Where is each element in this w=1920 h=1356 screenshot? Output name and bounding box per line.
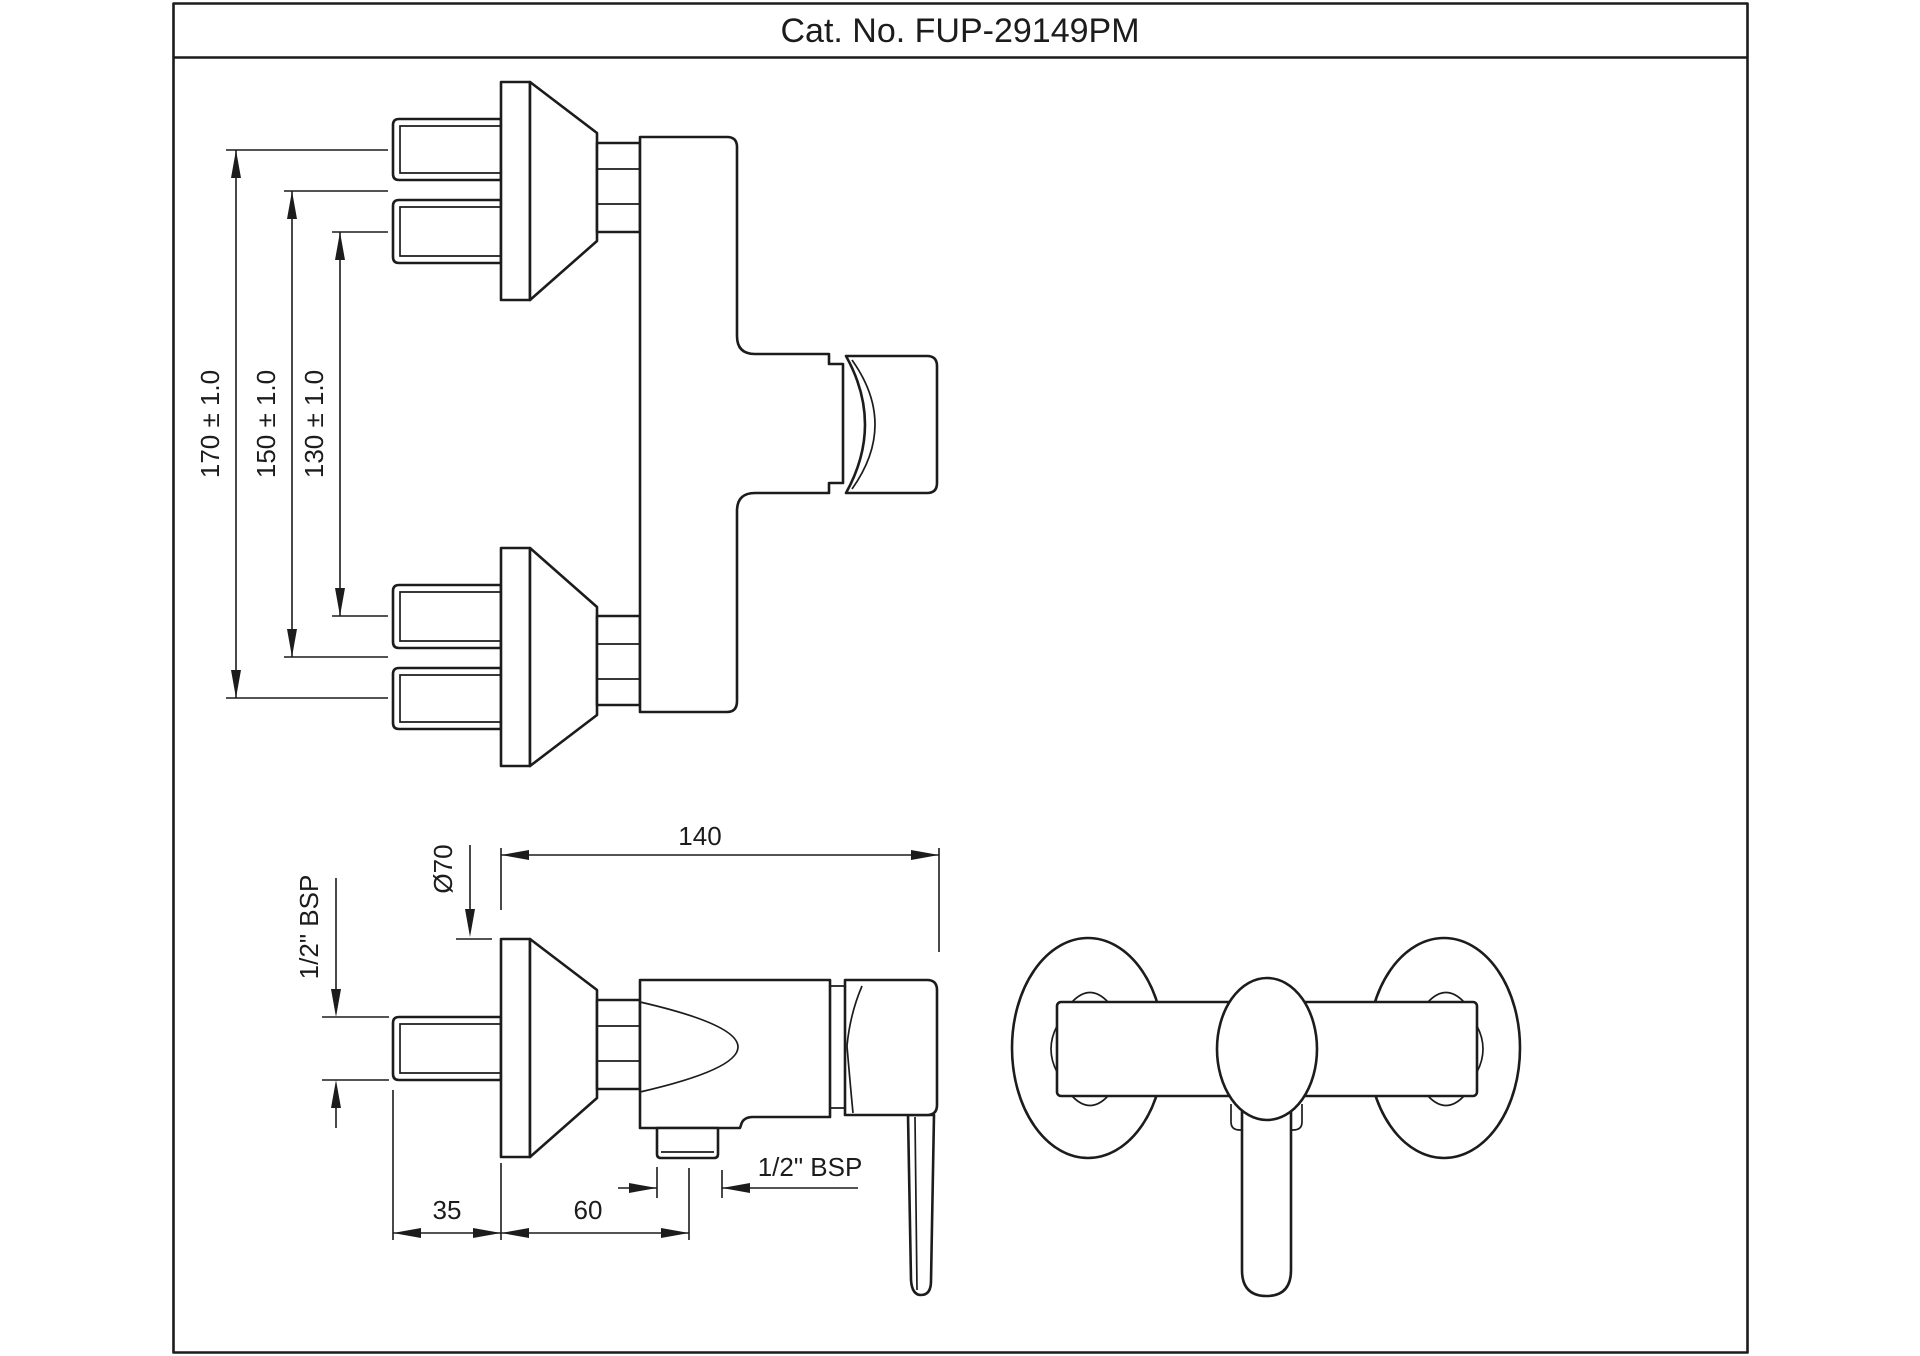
- lever-handle-side: [908, 1115, 934, 1295]
- flange-cone: [530, 939, 597, 1157]
- drawing-title: Cat. No. FUP-29149PM: [780, 12, 1139, 50]
- handle-cap-side: [845, 980, 937, 1115]
- dim-label-inlet-thread: 1/2" BSP: [294, 875, 324, 980]
- drawing-sheet: Cat. No. FUP-29149PM: [0, 0, 1920, 1356]
- inlet-connector-side: [393, 939, 640, 1157]
- inlet-pipe: [393, 585, 501, 648]
- dim-label-130: 130 ± 1.0: [299, 370, 329, 478]
- inlet-pipe: [393, 200, 501, 263]
- cap-neck-lines: [830, 986, 845, 1108]
- dimension-outlet-thread: 1/2" BSP: [618, 1152, 862, 1198]
- connector-nut: [597, 143, 640, 232]
- handle-cap: [846, 356, 937, 493]
- flange-cone: [530, 548, 597, 766]
- outlet-spout: [657, 1128, 718, 1158]
- dim-label-140: 140: [678, 821, 721, 851]
- elevation-view: 170 ± 1.0 150 ± 1.0 130 ± 1.0: [195, 82, 937, 766]
- inlet-pipe: [393, 668, 501, 729]
- wall-flange: [501, 939, 530, 1157]
- dim-label-35: 35: [433, 1195, 462, 1225]
- inlet-pipe: [393, 1017, 501, 1080]
- dim-label-170: 170 ± 1.0: [195, 370, 225, 478]
- inlet-pipe: [393, 119, 501, 180]
- dimension-inlet-thread: 1/2" BSP: [294, 875, 389, 1128]
- side-profile-view: 140 Ø70 1/2" BSP 35 60 1/2" BSP: [294, 821, 939, 1295]
- dim-label-outlet-thread: 1/2" BSP: [758, 1152, 863, 1182]
- upper-inlet-connector: [393, 82, 640, 300]
- flange-cone: [530, 82, 597, 300]
- connector-nut: [597, 616, 640, 705]
- technical-drawing: Cat. No. FUP-29149PM: [0, 0, 1920, 1356]
- dimension-130: 130 ± 1.0: [299, 232, 388, 616]
- dim-label-60: 60: [574, 1195, 603, 1225]
- dim-label-flange-diameter: Ø70: [428, 844, 458, 893]
- dimension-140: 140: [501, 821, 939, 952]
- connector-nut: [597, 1000, 640, 1089]
- wall-flange: [501, 82, 530, 300]
- front-face-view: [1012, 938, 1520, 1296]
- handle-base-knob: [1217, 978, 1317, 1120]
- mixer-body: [640, 137, 843, 712]
- dimension-flange-diameter: Ø70: [428, 844, 492, 939]
- lower-inlet-connector: [393, 548, 640, 766]
- wall-flange: [501, 548, 530, 766]
- dim-label-150: 150 ± 1.0: [251, 370, 281, 478]
